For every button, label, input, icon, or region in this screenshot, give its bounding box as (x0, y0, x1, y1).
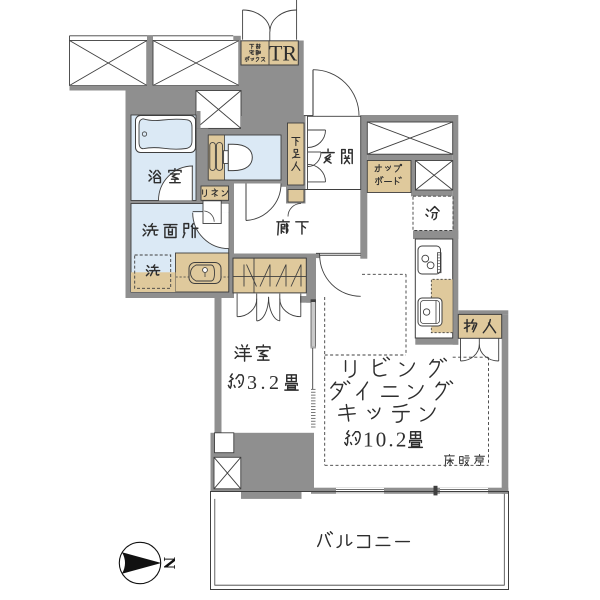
svg-text:TR: TR (269, 41, 297, 66)
svg-text:10.2: 10.2 (363, 428, 409, 452)
svg-text:N: N (160, 557, 179, 570)
svg-text:3.2: 3.2 (247, 372, 283, 394)
